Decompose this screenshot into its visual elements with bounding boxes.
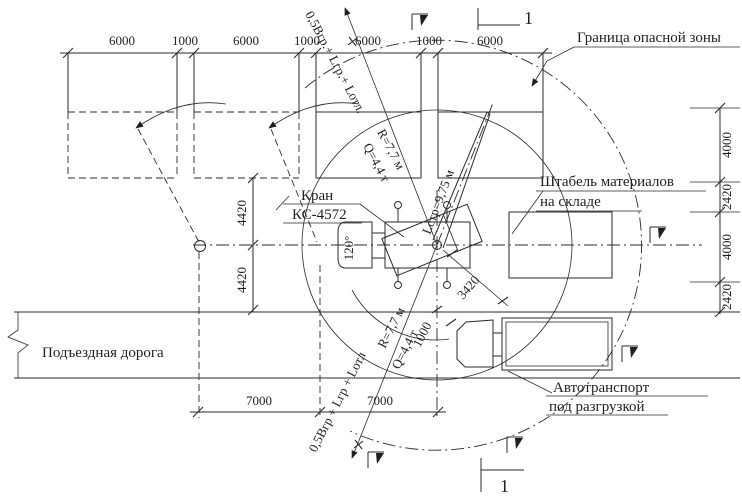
right-dimension-chain: 4000 2420 4000 2420 xyxy=(690,103,740,317)
truck-label-line1: Автотранспорт xyxy=(553,380,650,396)
danger-radius-line-bottom: 0,5Вгр + Lгр + Lотл R=7,7 м Q=4,4 т xyxy=(305,245,437,458)
dim-top-1: 6000 xyxy=(109,33,135,48)
section-mark-bottom: 1 xyxy=(481,458,524,496)
truck-trailer xyxy=(502,318,612,370)
building-bay-4 xyxy=(438,53,543,178)
material-stack: Штабель материалов на складе xyxy=(509,174,706,278)
svg-text:1: 1 xyxy=(524,8,533,28)
section-mark-top: 1 xyxy=(478,8,533,30)
stack-label-line1: Штабель материалов xyxy=(540,174,674,190)
site-plan-drawing: 6000 1000 6000 1000 6000 1000 6000 4000 … xyxy=(0,0,742,502)
road-break-symbol xyxy=(8,312,28,378)
dim-right-4: 2420 xyxy=(719,284,734,310)
dim-4420-bottom: 4420 xyxy=(234,267,249,293)
construction-site-plan: 6000 1000 6000 1000 6000 1000 6000 4000 … xyxy=(0,0,742,502)
svg-text:3420: 3420 xyxy=(454,273,482,302)
top-dimension-chain: 6000 1000 6000 1000 6000 1000 6000 xyxy=(60,33,552,58)
flag-icon xyxy=(650,227,666,243)
formula-top: 0,5Вгр.+ Lгр.+ Lотл. xyxy=(302,8,369,115)
dim-top-7: 6000 xyxy=(477,33,503,48)
building-bay-1 xyxy=(68,53,177,178)
flag-icon xyxy=(507,437,523,453)
svg-text:1000: 1000 xyxy=(409,319,434,349)
stack-label-line2: на складе xyxy=(540,194,601,210)
crane: 120° xyxy=(338,103,493,289)
swing-angle-label: 120° xyxy=(341,236,356,261)
dim-7000-left: 7000 xyxy=(246,393,272,408)
danger-zone-label: Граница опасной зоны xyxy=(532,30,740,86)
dim-7000-right: 7000 xyxy=(367,393,393,408)
svg-text:Граница опасной зоны: Граница опасной зоны xyxy=(577,30,721,46)
access-road: Подъездная дорога xyxy=(8,312,740,378)
svg-text:КС-4572: КС-4572 xyxy=(292,207,347,223)
dim-right-2: 2420 xyxy=(719,184,734,210)
dim-top-3: 6000 xyxy=(233,33,259,48)
svg-text:1: 1 xyxy=(500,476,509,496)
truck: Автотранспорт под разгрузкой xyxy=(457,318,708,415)
crane-stand-position-marker xyxy=(195,241,206,252)
building-bay-2 xyxy=(194,53,299,178)
dim-1000: 1000 xyxy=(409,306,456,349)
dim-top-5: 6000 xyxy=(355,33,381,48)
truck-leader xyxy=(508,371,552,393)
svg-text:Кран: Кран xyxy=(301,188,333,204)
dim-right-1: 4000 xyxy=(719,132,734,158)
dim-right-3: 4000 xyxy=(719,234,734,260)
left-vertical-dimension-chain: 4420 4420 xyxy=(234,173,258,315)
dim-4420-top: 4420 xyxy=(234,200,249,226)
dim-top-6: 1000 xyxy=(416,33,442,48)
road-label: Подъездная дорога xyxy=(42,345,164,361)
dim-3420: 3420 xyxy=(443,250,508,306)
flag-icon xyxy=(412,14,428,30)
dim-top-2: 1000 xyxy=(172,33,198,48)
flag-icon xyxy=(622,346,638,362)
truck-cab xyxy=(457,320,493,367)
flag-icon xyxy=(368,452,384,468)
truck-label-line2: под разгрузкой xyxy=(549,399,645,415)
